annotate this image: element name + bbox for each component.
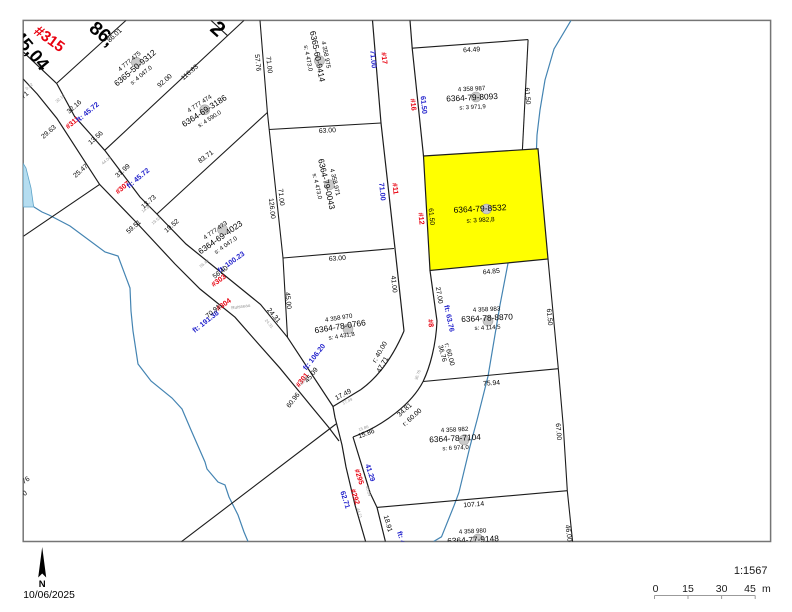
svg-text:63.00: 63.00 bbox=[329, 255, 347, 263]
svg-text:1:1567: 1:1567 bbox=[734, 565, 768, 577]
svg-text:71.00: 71.00 bbox=[368, 50, 379, 69]
svg-text:61.50: 61.50 bbox=[419, 96, 430, 115]
svg-text:15: 15 bbox=[682, 583, 694, 595]
svg-text:#16: #16 bbox=[408, 98, 418, 111]
svg-text:75.94: 75.94 bbox=[483, 380, 501, 388]
svg-text:#12: #12 bbox=[416, 212, 426, 225]
svg-text:64.49: 64.49 bbox=[463, 46, 481, 54]
svg-text:64.85: 64.85 bbox=[483, 268, 501, 276]
svg-text:#8: #8 bbox=[426, 319, 436, 328]
svg-text:63.00: 63.00 bbox=[319, 127, 337, 135]
svg-text:61.50: 61.50 bbox=[523, 87, 531, 105]
svg-text:45: 45 bbox=[744, 583, 756, 595]
svg-text:s: 3 982,8: s: 3 982,8 bbox=[466, 216, 495, 224]
svg-text:107.14: 107.14 bbox=[463, 501, 484, 509]
svg-text:0: 0 bbox=[653, 583, 659, 595]
svg-text:#11: #11 bbox=[390, 182, 400, 194]
svg-text:#17: #17 bbox=[379, 52, 389, 65]
svg-text:10/06/2025: 10/06/2025 bbox=[23, 590, 75, 601]
svg-text:N: N bbox=[39, 579, 46, 590]
svg-text:71.00: 71.00 bbox=[377, 182, 388, 201]
svg-text:67.00: 67.00 bbox=[554, 423, 562, 441]
svg-text:61.50: 61.50 bbox=[545, 308, 553, 326]
svg-text:m: m bbox=[762, 583, 771, 595]
svg-text:30: 30 bbox=[716, 583, 728, 595]
